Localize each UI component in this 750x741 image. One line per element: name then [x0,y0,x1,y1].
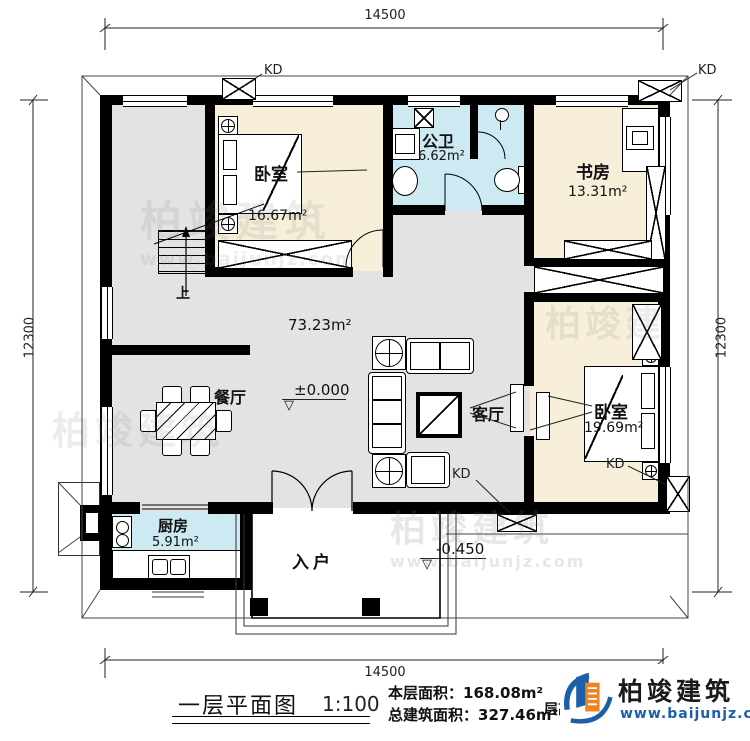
bedroom2-wardrobe [632,304,662,360]
monitor-screen [632,131,648,145]
floor-plan-canvas: 卧室 16.67m² 公卫 6.62m² 书房 13.31m² 73.23m² … [0,0,750,741]
room-label-study: 书房 [576,158,610,183]
wall [524,302,534,386]
dimension-bottom: 14500 [345,665,425,680]
bath-sink [390,128,420,160]
floor-area-label: 本层面积： [388,684,463,702]
porch-column [362,598,380,616]
logo-tower-orange [585,683,599,712]
wall [208,502,273,514]
chair [190,386,210,403]
pillow [641,373,655,409]
level-main-triangle: ▽ [284,398,294,413]
wall [353,502,670,514]
sliding-door-panel [536,392,550,440]
brand-name: 柏竣建筑 [618,672,734,708]
wall [383,205,445,215]
total-area-row: 总建筑面积：327.46m² [388,704,558,725]
kd-roll-door-box [497,514,537,532]
sliding-door-panel [510,384,524,432]
pedestal-basin [392,166,418,196]
level-entry-label: -0.450 [436,540,484,558]
brand-logo: 柏竣建筑 www.baijunjz.com [560,664,750,734]
window [253,95,333,107]
room-area-bedroom1: 16.67m² [248,208,307,224]
shower-drain [414,108,434,128]
brand-logo-icon [560,666,614,730]
kitchen-sink [148,555,190,579]
burner [116,534,129,547]
total-area-label: 总建筑面积： [388,706,478,724]
kd-label: KD [264,63,283,78]
stove [112,516,132,548]
kitchen-steps [152,592,204,597]
window [101,287,113,339]
window [556,95,628,107]
cushion [372,376,402,400]
nightstand [218,116,238,136]
bedroom1-wardrobe [218,240,352,269]
floor-area-value: 168.08m² [463,684,543,702]
bath-partition-wall [470,101,478,159]
level-main-label: ±0.000 [294,381,350,399]
loveseat-sofa [406,338,474,374]
chair [190,439,210,456]
cushion [410,342,440,370]
sink-basin [152,559,168,575]
total-area-value: 327.46m² [478,706,558,724]
kd-label: KD [452,467,471,482]
plan-scale: 1:100 [322,692,380,716]
monitor [626,126,654,150]
side-table-lamp [372,454,406,488]
dimension-right: 12300 [715,308,730,368]
cushion [411,456,445,484]
flue-hole [86,513,98,533]
sink-bowl [395,134,415,154]
single-sofa [406,452,450,488]
room-label-living: 客厅 [472,401,504,425]
room-area-kitchen: 5.91m² [152,535,199,550]
window [408,95,460,107]
kd-roll-door-box [222,78,256,100]
storage-band [534,266,664,294]
room-label-bedroom1: 卧室 [254,160,288,185]
wall [205,95,215,277]
sink-basin [170,559,186,575]
toilet-bowl [494,168,520,192]
floor-area-row: 本层面积：168.08m² [388,682,543,703]
cushion [440,342,470,370]
window [659,367,671,463]
room-label-entry: 入户 [292,548,334,573]
wall [524,95,534,258]
burner [116,521,129,534]
side-table-lamp [372,336,406,370]
kd-roll-door-box [638,80,682,102]
room-label-dining: 餐厅 [214,384,246,408]
window [101,407,113,495]
cushion [372,400,402,424]
chair [162,386,182,403]
porch-floor [253,514,439,616]
wall [100,578,252,590]
chair [162,439,182,456]
study-cabinet [564,240,652,260]
wall [240,514,252,590]
pillow [223,175,237,205]
room-area-bedroom2: 19.69m² [584,420,643,436]
dimension-left: 12300 [23,308,38,368]
porch-column [250,598,268,616]
kd-label: KD [698,63,717,78]
three-seat-sofa [368,372,406,454]
kd-label: KD [606,457,625,472]
stairs-up-label: 上 [176,283,190,303]
shower-head [495,108,509,122]
nightstand [218,214,238,234]
flue-core [80,505,106,541]
room-area-bathroom: 6.62m² [418,149,465,164]
ac-unit [666,476,690,512]
hall-area-label: 73.23m² [288,316,352,334]
brand-website: www.baijunjz.com [620,706,750,722]
coffee-table [416,392,462,438]
room-area-study: 13.31m² [568,184,627,200]
window [123,95,187,107]
title-underline [172,716,370,724]
wall [383,95,393,277]
dining-table [156,402,216,440]
dining-divider-wall [112,345,250,355]
wall [100,502,140,514]
wall [524,436,534,502]
room-label-kitchen: 厨房 [158,515,188,536]
shower-stem [500,120,501,130]
level-entry-triangle: ▽ [422,557,432,572]
cushion [372,424,402,448]
pillow [223,140,237,170]
chair [216,410,232,432]
dimension-top: 14500 [345,8,425,23]
chair [140,410,156,432]
